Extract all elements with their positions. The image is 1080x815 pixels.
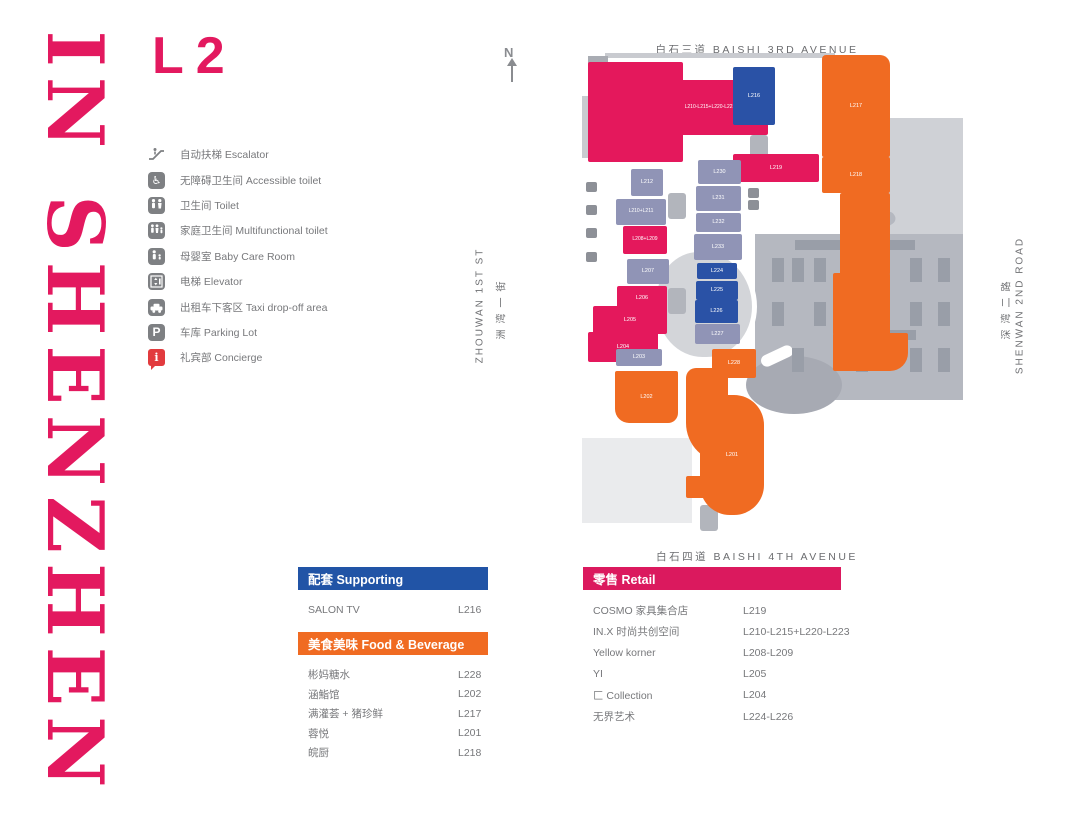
map-unit-label: L208+L209 — [632, 237, 657, 243]
map-unit-label: L201 — [726, 452, 738, 458]
table-row: 匚 CollectionL204 — [583, 685, 841, 706]
table-row: SALON TVL216 — [298, 600, 488, 620]
table-row: 皖厨L218 — [298, 743, 488, 763]
unit-code: L204 — [743, 689, 766, 701]
map-unit-label: L207 — [642, 268, 654, 274]
tenant-name: IN.X 时尚共创空间 — [593, 624, 743, 639]
map-unit-l225: L225 — [696, 281, 738, 300]
map-unit-l224: L224 — [697, 263, 737, 279]
map-unit-label: L232 — [712, 219, 724, 225]
tenant-name: 无界艺术 — [593, 709, 743, 724]
unit-code: L205 — [743, 668, 766, 680]
retail-table: 零售 RetailCOSMO 家具集合店L219IN.X 时尚共创空间L210-… — [583, 567, 841, 727]
map-facility-icon — [748, 200, 759, 210]
table-row: 涵鮨馆L202 — [298, 685, 488, 705]
tenant-name: COSMO 家具集合店 — [593, 603, 743, 618]
floor-map: ML210-L215+L220-L223L208+L209L206L205L20… — [0, 0, 1080, 815]
map-unit-l227: L227 — [695, 324, 740, 344]
tenant-name: Yellow korner — [593, 647, 743, 659]
table-header: 美食美味 Food & Beverage — [298, 632, 488, 655]
map-unit-l230: L230 — [698, 160, 741, 184]
supporting-table: 配套 SupportingSALON TVL216 — [298, 567, 488, 620]
map-facility-icon — [586, 252, 597, 262]
map-unit-segment — [833, 333, 908, 371]
unit-code: L217 — [458, 708, 481, 720]
map-unit-l212: L212 — [631, 169, 663, 196]
map-unit-label: L228 — [728, 360, 740, 366]
unit-code: L224-L226 — [743, 711, 793, 723]
map-unit-segment — [833, 273, 890, 335]
tenant-name: SALON TV — [308, 604, 458, 616]
map-facility-icon — [586, 182, 597, 192]
table-header: 零售 Retail — [583, 567, 841, 590]
map-unit-label: L219 — [770, 165, 782, 171]
map-escalator-icon — [668, 288, 686, 314]
map-unit-l210+l211: L210+L211 — [616, 199, 666, 225]
table-title: 配套 Supporting — [308, 569, 403, 588]
map-unit-label: L206 — [636, 295, 648, 301]
table-row: IN.X 时尚共创空间L210-L215+L220-L223 — [583, 621, 841, 642]
tenant-name: YI — [593, 668, 743, 680]
map-parking-structure — [938, 302, 950, 326]
map-unit-l202: L202 — [615, 371, 678, 423]
map-parking-structure — [938, 258, 950, 282]
map-parking-structure — [772, 258, 784, 282]
unit-code: L216 — [458, 604, 481, 616]
tenant-name: 皖厨 — [308, 745, 458, 760]
table-row: YIL205 — [583, 664, 841, 685]
map-unit-label: L231 — [712, 195, 724, 201]
map-unit-label: L230 — [713, 169, 725, 175]
map-unit-l216: L216 — [733, 67, 775, 125]
unit-code: L201 — [458, 727, 481, 739]
map-unit-l232: L232 — [696, 213, 741, 232]
map-parking-structure — [814, 302, 826, 326]
map-unit-label: L217 — [850, 103, 862, 109]
table-rows: COSMO 家具集合店L219IN.X 时尚共创空间L210-L215+L220… — [583, 600, 841, 727]
food-beverage-table: 美食美味 Food & Beverage彬妈糖水L228涵鮨馆L202满灌荟 +… — [298, 632, 488, 763]
map-unit-label: L226 — [710, 308, 722, 314]
table-rows: 彬妈糖水L228涵鮨馆L202满灌荟 + 猪珍鲜L217蓉悦L201皖厨L218 — [298, 665, 488, 763]
map-unit-label: L210+L211 — [629, 209, 654, 215]
map-parking-structure — [792, 258, 804, 282]
unit-code: L208-L209 — [743, 647, 793, 659]
map-unit-label: L227 — [711, 331, 723, 337]
map-unit-l231: L231 — [696, 186, 741, 211]
map-parking-structure — [938, 348, 950, 372]
map-unit-label: L233 — [712, 244, 724, 250]
map-unit-l226: L226 — [695, 300, 738, 323]
map-unit-label: L212 — [641, 179, 653, 185]
table-row: 蓉悦L201 — [298, 724, 488, 744]
table-row: Yellow kornerL208-L209 — [583, 642, 841, 663]
map-unit-label: L218 — [850, 172, 862, 178]
map-unit-label: L202 — [640, 394, 652, 400]
map-empty-lot — [582, 438, 692, 523]
map-facility-icon — [586, 205, 597, 215]
map-unit-l208+l209: L208+L209 — [623, 226, 667, 254]
map-unit-l228: L228 — [712, 349, 756, 378]
table-title: 零售 Retail — [593, 569, 656, 588]
map-unit-l205: L205 — [593, 306, 667, 334]
map-parking-structure — [814, 258, 826, 282]
map-facility-icon — [748, 188, 759, 198]
tenant-name: 满灌荟 + 猪珍鲜 — [308, 706, 458, 721]
table-header: 配套 Supporting — [298, 567, 488, 590]
unit-code: L218 — [458, 747, 481, 759]
map-parking-structure — [910, 258, 922, 282]
map-parking-structure — [792, 348, 804, 372]
map-parking-structure — [910, 302, 922, 326]
map-unit-l203: L203 — [616, 349, 662, 366]
table-rows: SALON TVL216 — [298, 600, 488, 620]
unit-code: L219 — [743, 605, 766, 617]
map-unit-l218: L218 — [822, 157, 890, 193]
map-unit-l233: L233 — [694, 234, 742, 260]
map-unit-segment — [686, 476, 710, 498]
map-unit-label: L210-L215+L220-L223 — [685, 105, 736, 111]
map-unit-l217: L217 — [822, 55, 890, 157]
table-title: 美食美味 Food & Beverage — [308, 634, 464, 653]
map-facility-icon — [586, 228, 597, 238]
unit-code: L202 — [458, 688, 481, 700]
map-unit-label: L216 — [748, 93, 760, 99]
unit-code: L228 — [458, 669, 481, 681]
table-row: 无界艺术L224-L226 — [583, 706, 841, 727]
map-unit-segment — [840, 193, 890, 275]
table-row: COSMO 家具集合店L219 — [583, 600, 841, 621]
map-unit-label: L203 — [633, 354, 645, 360]
map-unit-label: L205 — [624, 317, 636, 323]
map-parking-structure — [772, 302, 784, 326]
map-wall — [605, 53, 835, 58]
tenant-name: 匚 Collection — [593, 688, 743, 703]
map-unit-label: L225 — [711, 287, 723, 293]
map-unit-l219: L219 — [733, 154, 819, 182]
tenant-name: 涵鮨馆 — [308, 687, 458, 702]
map-unit-l207: L207 — [627, 259, 669, 284]
map-parking-structure — [910, 348, 922, 372]
table-row: 满灌荟 + 猪珍鲜L217 — [298, 704, 488, 724]
table-row: 彬妈糖水L228 — [298, 665, 488, 685]
tenant-name: 彬妈糖水 — [308, 667, 458, 682]
map-unit-label: L224 — [711, 268, 723, 274]
tenant-name: 蓉悦 — [308, 726, 458, 741]
unit-code: L210-L215+L220-L223 — [743, 626, 850, 638]
map-escalator-icon — [668, 193, 686, 219]
